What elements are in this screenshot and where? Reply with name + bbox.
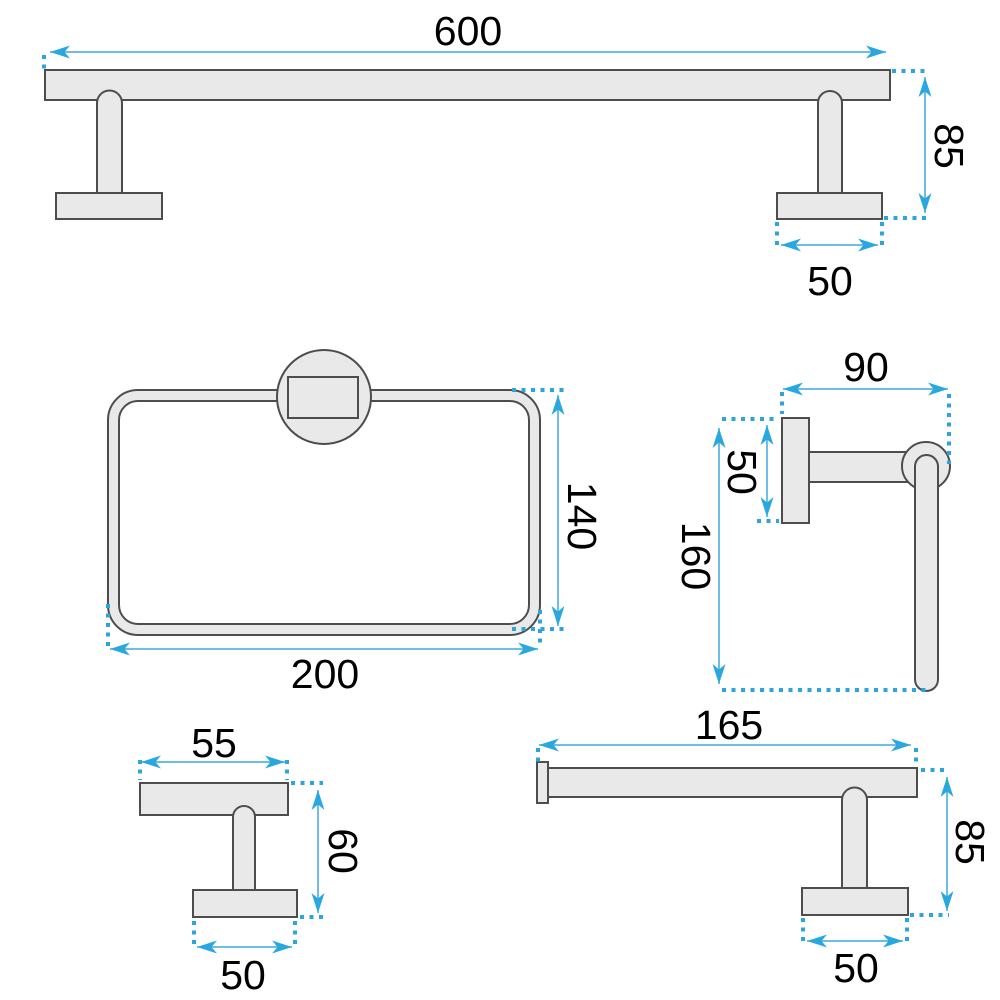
- towel-bar-right-foot: [777, 193, 882, 219]
- dimension-drawing-canvas: 600 85 50 140 200 90 50 160: [0, 0, 1000, 1000]
- dim-label-towel-ring-width: 200: [291, 651, 359, 697]
- hook-arm: [809, 452, 909, 482]
- towel-bar-rail: [45, 70, 890, 100]
- dim-label-hook-plate-height: 50: [719, 449, 765, 495]
- hook-wall-plate: [782, 418, 809, 523]
- paper-holder-post: [842, 788, 867, 889]
- dim-label-robe-hook-base: 50: [220, 952, 266, 998]
- towel-ring-figure: 140 200: [108, 350, 605, 697]
- towel-bar-figure: 600 85 50: [44, 8, 972, 304]
- robe-hook-stem: [233, 806, 255, 890]
- towel-bar-left-foot: [56, 193, 162, 219]
- dim-label-hook-depth: 90: [843, 344, 889, 390]
- dim-label-towel-ring-height: 140: [559, 482, 605, 550]
- paper-holder-end-cap: [537, 762, 548, 803]
- dim-label-towel-bar-height: 85: [926, 123, 972, 169]
- towel-bar-left-post: [97, 91, 122, 194]
- towel-ring-mount-plate: [288, 377, 358, 418]
- wall-hook-side-figure: 90 50 160: [673, 344, 950, 691]
- paper-holder-base: [802, 888, 908, 915]
- robe-hook-figure: 55 60 50: [140, 720, 366, 998]
- robe-hook-base: [193, 890, 297, 917]
- dim-label-paper-holder-base: 50: [833, 945, 879, 991]
- dim-label-paper-holder-height: 85: [947, 819, 993, 865]
- dim-label-robe-hook-width: 55: [191, 720, 237, 766]
- robe-hook-top-plate: [140, 783, 288, 815]
- hook-hanging-bar: [915, 455, 938, 691]
- towel-bar-right-post: [818, 91, 842, 193]
- dim-label-towel-bar-base: 50: [807, 258, 853, 304]
- dim-label-paper-holder-width: 165: [695, 702, 763, 748]
- paper-holder-figure: 165 85 50: [537, 702, 993, 991]
- dim-label-robe-hook-height: 60: [320, 828, 366, 874]
- dim-label-towel-bar-width: 600: [434, 8, 502, 54]
- dim-label-hook-height: 160: [673, 522, 719, 590]
- bathroom-accessories-drawing: 600 85 50 140 200 90 50 160: [0, 0, 1000, 1000]
